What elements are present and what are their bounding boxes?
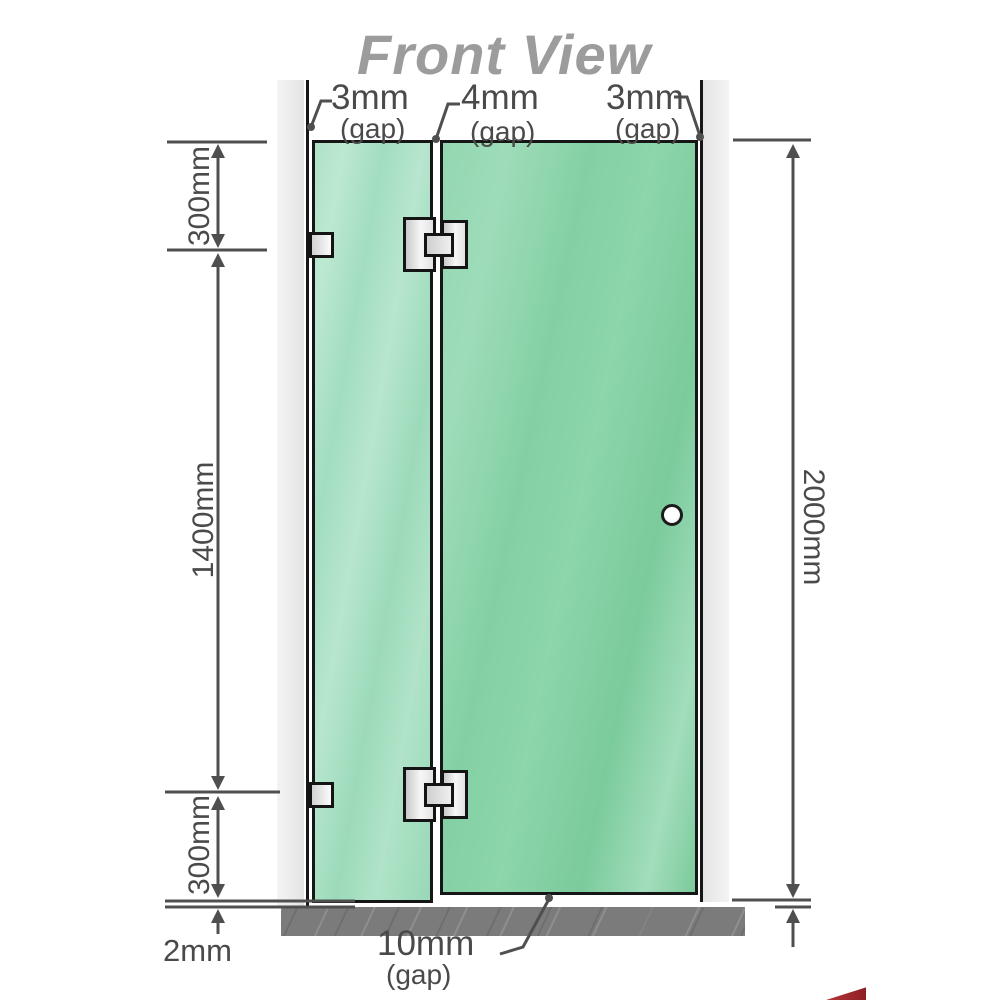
front-view-diagram: Front View <box>0 0 1000 1000</box>
label-top-left-gap: 3mm (gap) <box>331 80 409 143</box>
arrow-up <box>786 144 800 158</box>
gap-suffix: (gap) <box>377 961 474 989</box>
arrow-up <box>211 253 225 267</box>
label-2mm: 2mm <box>163 933 232 969</box>
label-1400mm: 1400mm <box>187 462 221 579</box>
logo-fragment <box>826 986 866 1000</box>
leader-dot <box>432 135 440 143</box>
leader-top-left-gap <box>311 101 332 127</box>
center-hinge-top-knuckle <box>424 233 454 257</box>
leader-dot <box>545 894 553 902</box>
left-wall-channel <box>277 80 304 906</box>
floor-base <box>281 907 745 936</box>
gap-value: 10mm <box>377 926 474 961</box>
gap-value: 3mm <box>606 80 684 115</box>
label-2000mm: 2000mm <box>796 469 830 586</box>
gap-value: 3mm <box>331 80 409 115</box>
leader-top-mid-gap <box>436 104 460 139</box>
door-knob <box>661 504 683 526</box>
door-glass-panel <box>440 140 698 895</box>
gap-suffix: (gap) <box>461 115 539 146</box>
wall-bracket-top <box>309 232 334 258</box>
label-bottom-gap: 10mm (gap) <box>377 926 474 989</box>
label-top-right-gap: 3mm (gap) <box>606 80 684 143</box>
arrow-down <box>786 884 800 898</box>
gap-suffix: (gap) <box>331 115 409 143</box>
center-hinge-bottom-knuckle <box>424 783 454 807</box>
wall-bracket-bottom <box>309 782 334 808</box>
label-300mm-top: 300mm <box>183 146 217 246</box>
label-top-mid-gap: 4mm (gap) <box>461 80 539 146</box>
gap-value: 4mm <box>461 80 539 115</box>
gap-suffix: (gap) <box>606 115 684 143</box>
label-300mm-bottom: 300mm <box>183 795 217 895</box>
arrow-up-2mm <box>211 909 225 923</box>
arrow-down <box>211 776 225 790</box>
arrow-up <box>786 909 800 923</box>
right-wall-channel <box>703 80 729 902</box>
